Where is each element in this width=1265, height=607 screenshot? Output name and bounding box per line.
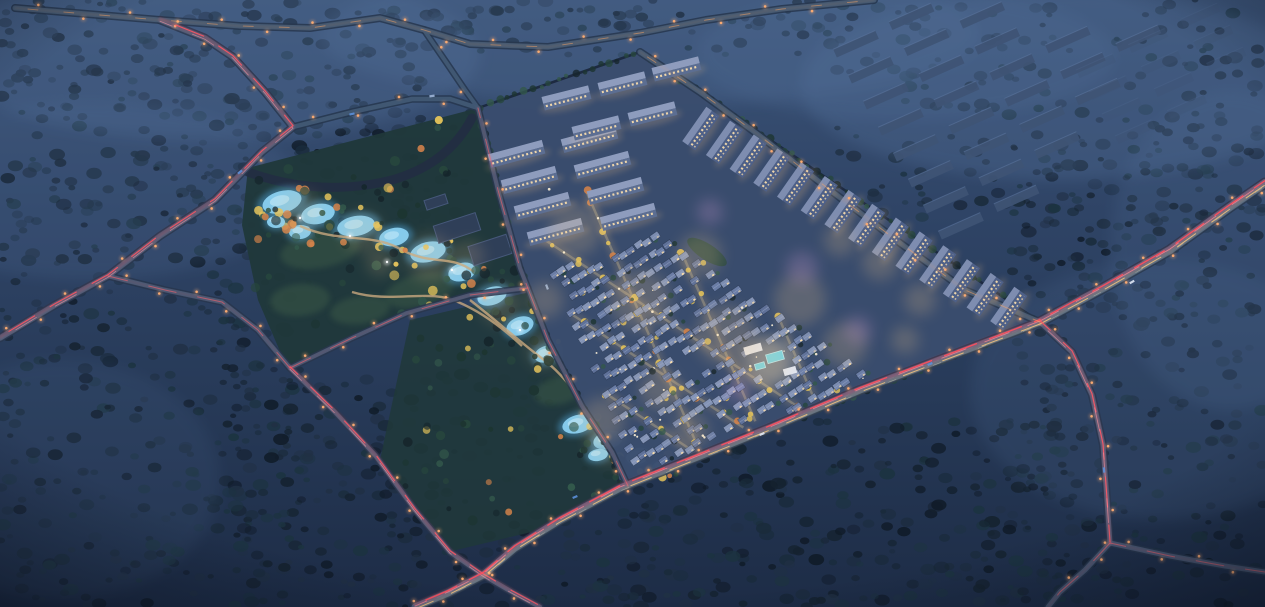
- aerial-masterplan-render: Night aerial rendering of a residential …: [0, 0, 1265, 607]
- render-canvas: [0, 0, 1265, 607]
- vignette-overlay: [0, 0, 1265, 607]
